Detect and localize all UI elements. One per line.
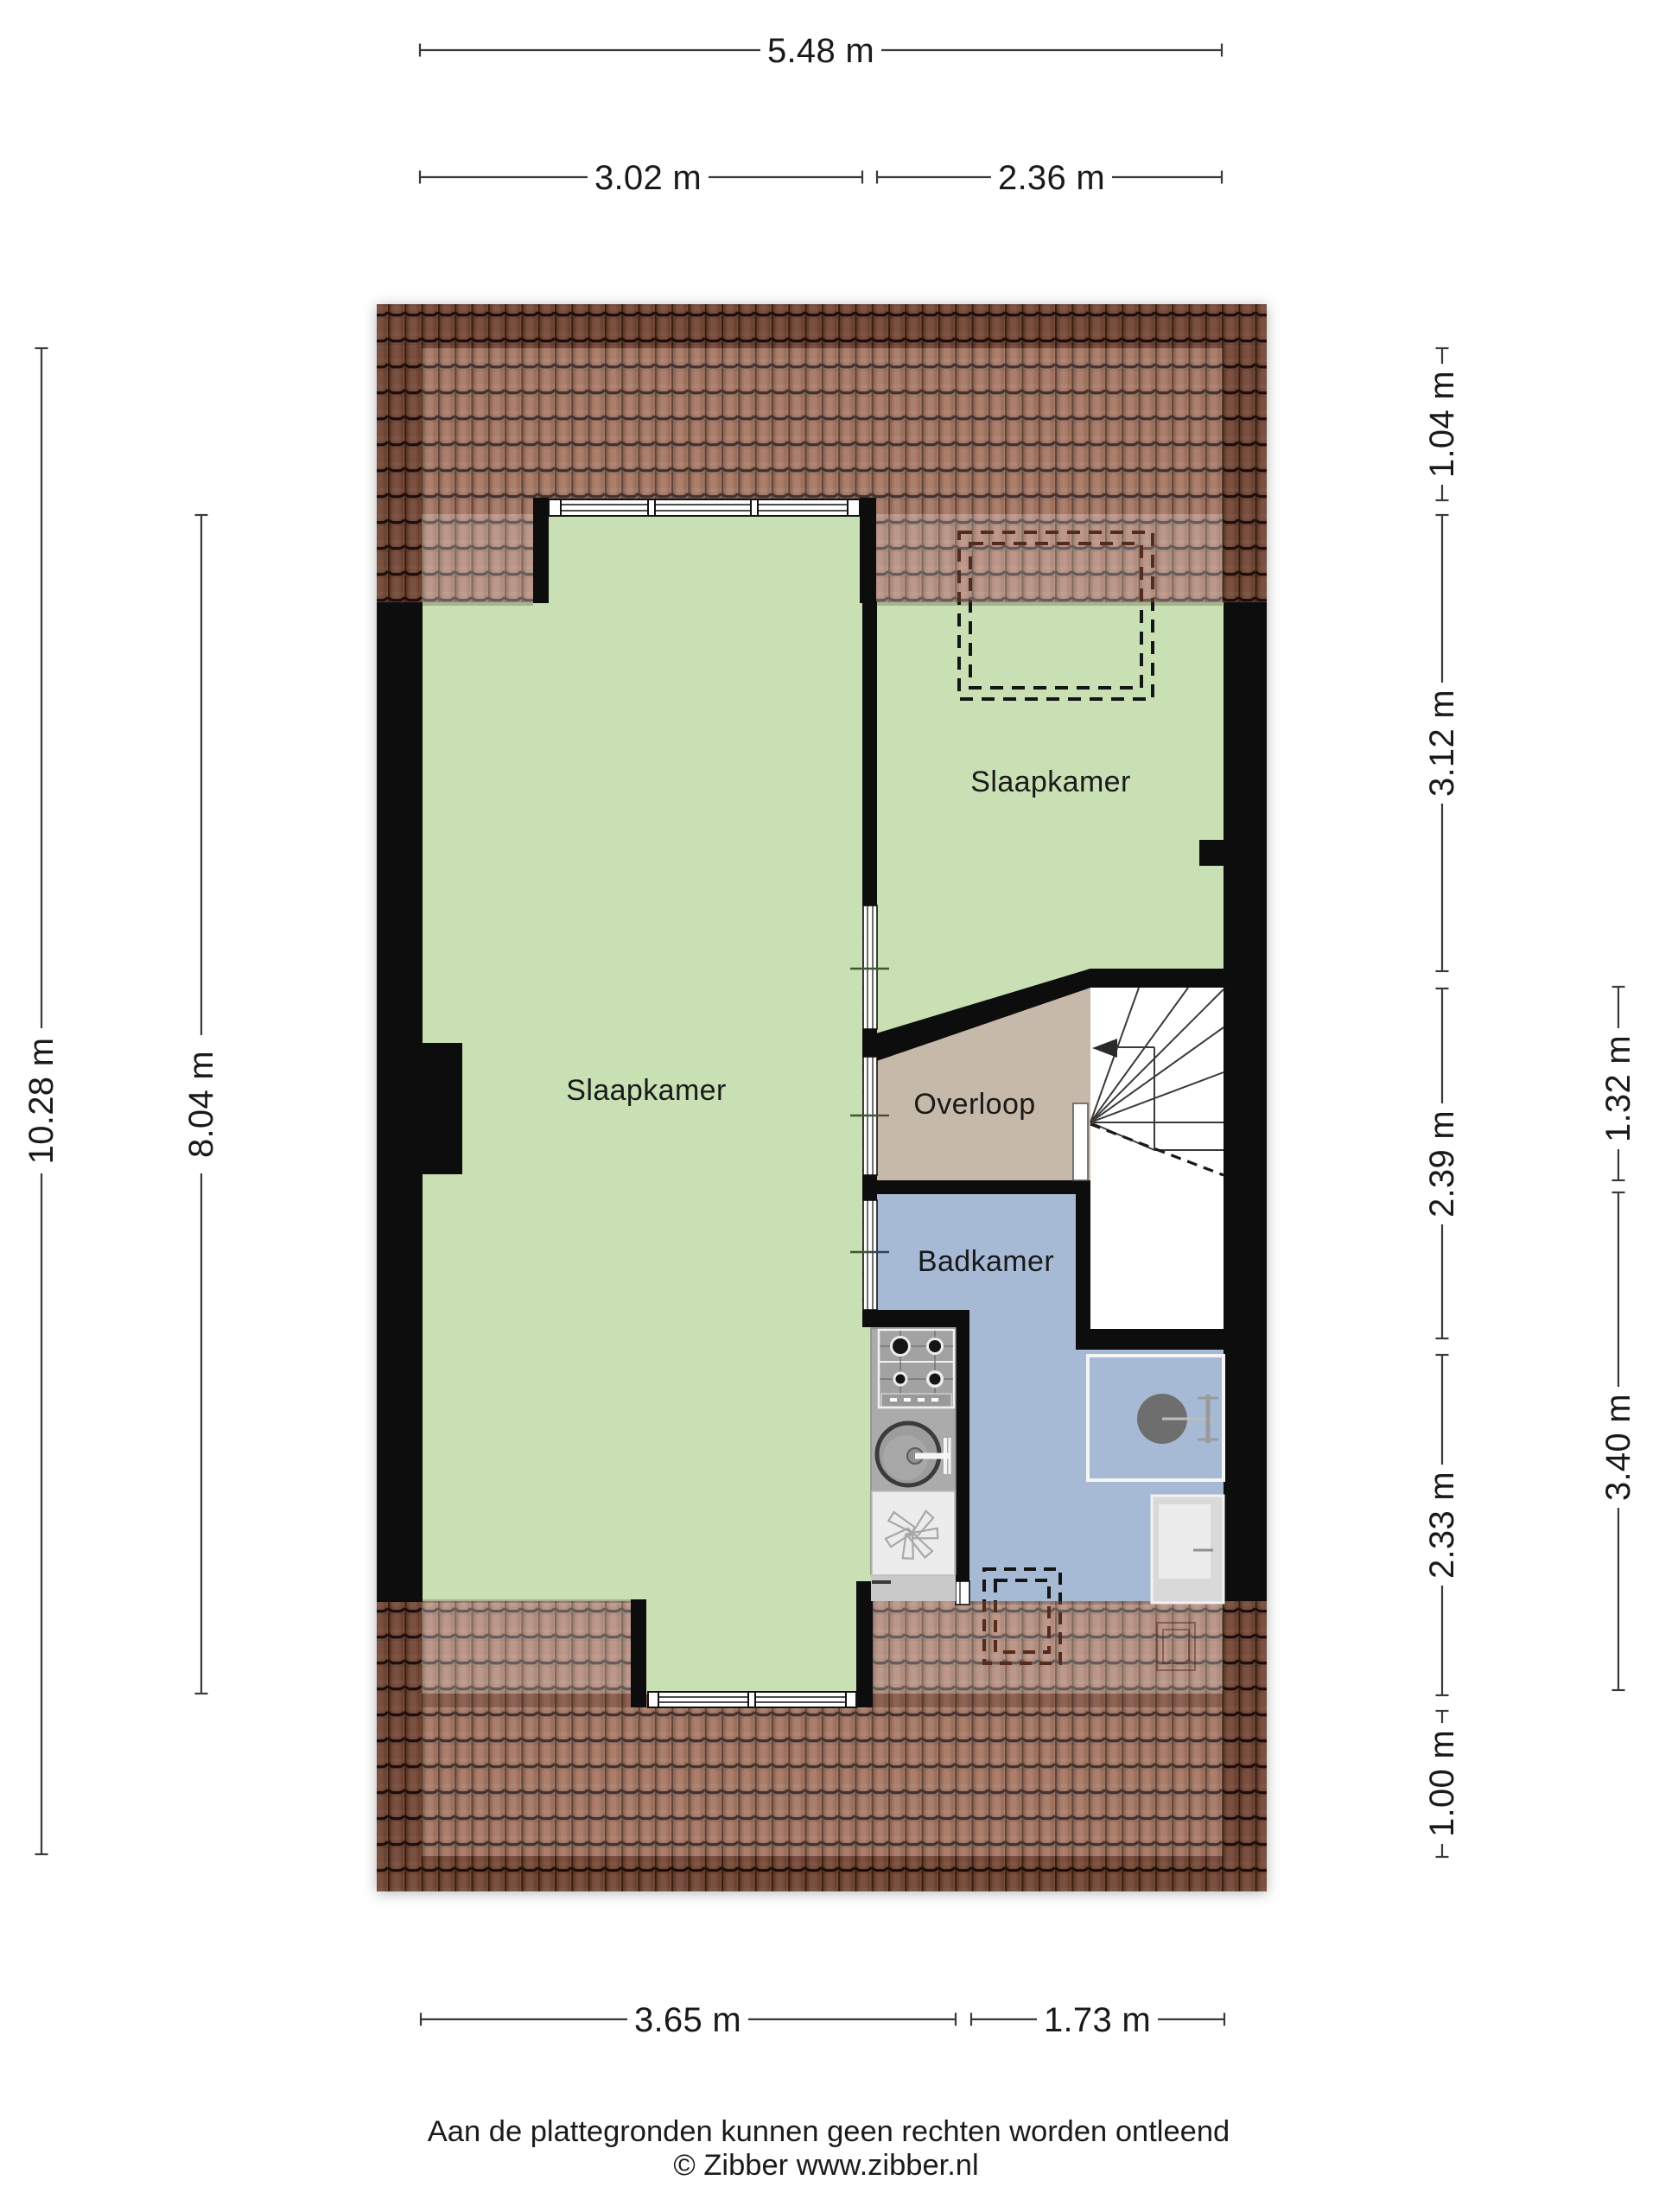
svg-text:Badkamer: Badkamer [918,1245,1054,1278]
svg-text:1.04 m: 1.04 m [1423,371,1461,478]
svg-text:Slaapkamer: Slaapkamer [970,766,1130,798]
svg-text:2.36 m: 2.36 m [998,159,1105,197]
svg-text:3.02 m: 3.02 m [594,159,702,197]
svg-text:Slaapkamer: Slaapkamer [566,1074,726,1107]
svg-text:Overloop: Overloop [913,1088,1035,1121]
svg-text:10.28 m: 10.28 m [22,1038,60,1165]
svg-text:1.00 m: 1.00 m [1423,1730,1461,1837]
svg-text:1.73 m: 1.73 m [1044,2001,1151,2039]
svg-text:2.39 m: 2.39 m [1423,1110,1461,1217]
svg-text:3.65 m: 3.65 m [634,2001,741,2039]
svg-text:1.32 m: 1.32 m [1599,1035,1637,1142]
svg-text:5.48 m: 5.48 m [767,32,874,70]
svg-text:3.12 m: 3.12 m [1423,690,1461,797]
svg-text:© Zibber www.zibber.nl: © Zibber www.zibber.nl [673,2149,978,2182]
svg-text:2.33 m: 2.33 m [1423,1471,1461,1579]
svg-text:8.04 m: 8.04 m [182,1051,220,1158]
svg-text:3.40 m: 3.40 m [1599,1394,1637,1501]
svg-text:Aan de plattegronden kunnen ge: Aan de plattegronden kunnen geen rechten… [428,2115,1230,2148]
